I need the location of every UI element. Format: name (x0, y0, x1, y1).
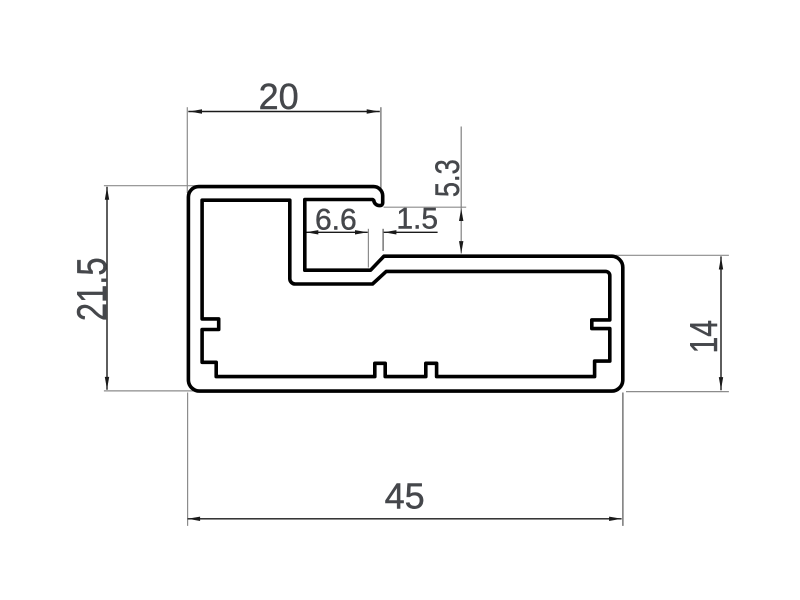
svg-text:14: 14 (683, 320, 725, 353)
svg-text:5.3: 5.3 (428, 159, 467, 197)
svg-text:20: 20 (259, 76, 299, 117)
svg-text:45: 45 (385, 476, 425, 517)
svg-text:6.6: 6.6 (315, 204, 357, 237)
svg-text:21.5: 21.5 (68, 257, 115, 321)
svg-text:1.5: 1.5 (396, 203, 438, 236)
